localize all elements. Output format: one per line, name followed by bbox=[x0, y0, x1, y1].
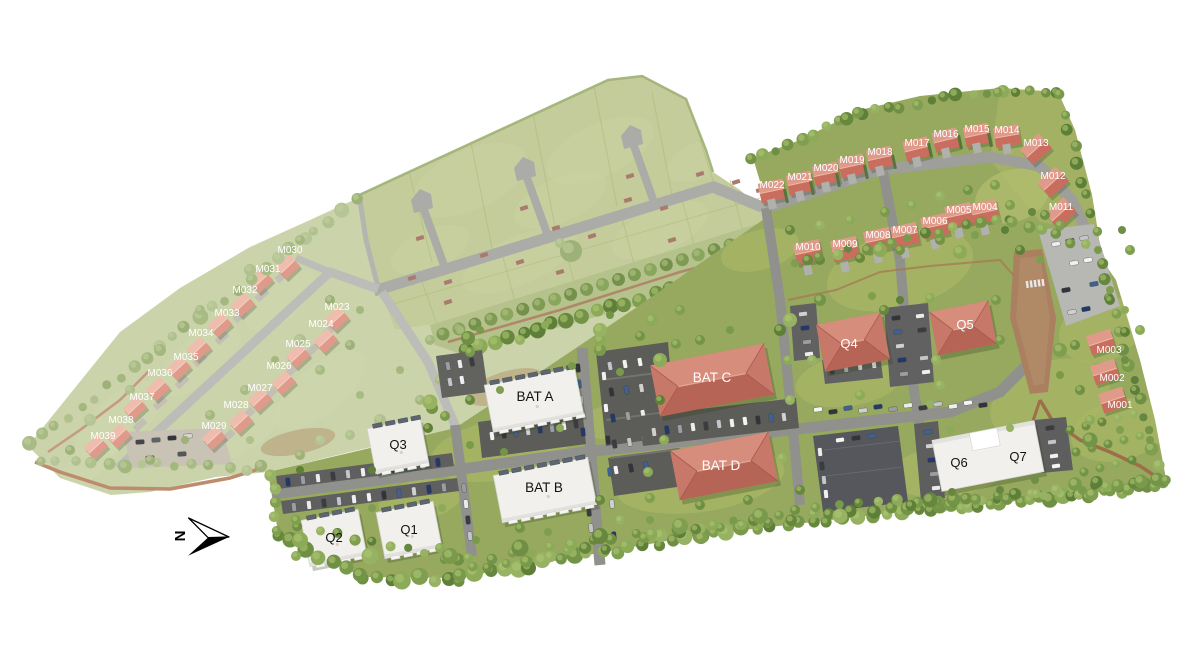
svg-text:M026: M026 bbox=[266, 361, 291, 372]
svg-text:M017: M017 bbox=[904, 138, 929, 149]
svg-text:M020: M020 bbox=[813, 163, 838, 174]
svg-text:M006: M006 bbox=[922, 216, 947, 227]
svg-text:M002: M002 bbox=[1099, 373, 1124, 384]
svg-text:M024: M024 bbox=[308, 319, 333, 330]
svg-text:BAT A: BAT A bbox=[516, 389, 553, 404]
svg-text:M021: M021 bbox=[787, 172, 812, 183]
svg-text:Q1: Q1 bbox=[400, 522, 417, 537]
svg-text:M003: M003 bbox=[1096, 345, 1121, 356]
svg-text:M007: M007 bbox=[892, 225, 917, 236]
svg-text:M022: M022 bbox=[759, 180, 784, 191]
svg-text:M029: M029 bbox=[201, 421, 226, 432]
svg-text:BAT D: BAT D bbox=[702, 458, 741, 473]
svg-text:M035: M035 bbox=[173, 352, 198, 363]
svg-text:M023: M023 bbox=[324, 302, 349, 313]
svg-text:M027: M027 bbox=[247, 383, 272, 394]
svg-text:BAT C: BAT C bbox=[693, 370, 732, 385]
svg-text:M038: M038 bbox=[108, 415, 133, 426]
svg-text:M025: M025 bbox=[285, 339, 310, 350]
svg-text:BAT B: BAT B bbox=[525, 480, 563, 495]
svg-text:M018: M018 bbox=[867, 147, 892, 158]
svg-text:Q3: Q3 bbox=[389, 437, 406, 452]
svg-text:M033: M033 bbox=[214, 308, 239, 319]
svg-text:M037: M037 bbox=[129, 392, 154, 403]
svg-text:M001: M001 bbox=[1107, 400, 1132, 411]
svg-text:M012: M012 bbox=[1040, 171, 1065, 182]
svg-text:M015: M015 bbox=[964, 124, 989, 135]
svg-text:M013: M013 bbox=[1023, 138, 1048, 149]
svg-text:M031: M031 bbox=[255, 264, 280, 275]
svg-text:M036: M036 bbox=[147, 368, 172, 379]
svg-text:M019: M019 bbox=[839, 155, 864, 166]
svg-text:N: N bbox=[172, 531, 189, 542]
svg-text:Q4: Q4 bbox=[840, 336, 857, 351]
svg-text:M028: M028 bbox=[223, 400, 248, 411]
svg-text:Q7: Q7 bbox=[1009, 449, 1026, 464]
svg-text:M032: M032 bbox=[232, 285, 257, 296]
svg-text:M009: M009 bbox=[832, 239, 857, 250]
svg-text:M034: M034 bbox=[188, 328, 213, 339]
svg-text:M016: M016 bbox=[933, 129, 958, 140]
svg-text:Q5: Q5 bbox=[956, 317, 973, 332]
svg-text:M011: M011 bbox=[1049, 202, 1074, 213]
svg-text:Q2: Q2 bbox=[325, 530, 342, 545]
svg-text:M004: M004 bbox=[972, 202, 997, 213]
svg-text:Q6: Q6 bbox=[950, 455, 967, 470]
svg-text:M005: M005 bbox=[946, 205, 971, 216]
svg-text:M014: M014 bbox=[994, 125, 1019, 136]
svg-text:M039: M039 bbox=[90, 431, 115, 442]
svg-text:M010: M010 bbox=[795, 242, 820, 253]
svg-text:M030: M030 bbox=[277, 245, 302, 256]
svg-text:M008: M008 bbox=[865, 230, 890, 241]
